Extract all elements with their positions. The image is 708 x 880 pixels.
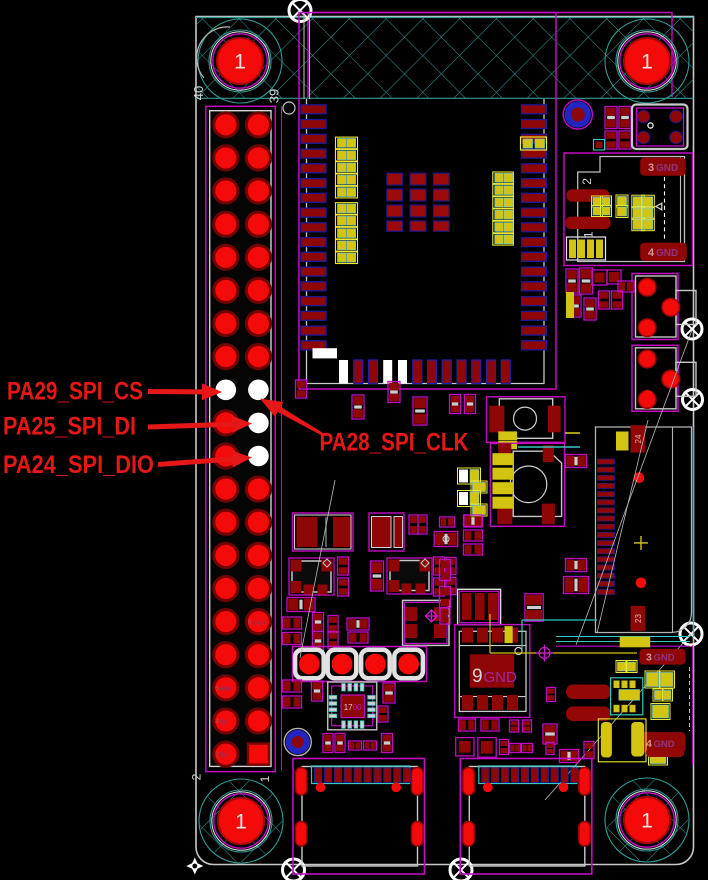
svg-text:4: 4 — [215, 719, 219, 726]
svg-text:PA24_SPI_DIO: PA24_SPI_DIO — [3, 451, 154, 479]
svg-text:3: 3 — [648, 162, 654, 174]
svg-text:24: 24 — [634, 434, 643, 443]
svg-text:2: 2 — [190, 773, 204, 780]
svg-text:GND: GND — [656, 248, 678, 259]
svg-text:1: 1 — [641, 810, 653, 833]
svg-text:1: 1 — [258, 775, 272, 782]
svg-text:5V: 5V — [220, 720, 227, 726]
svg-text:2: 2 — [580, 178, 594, 185]
svg-text:GND: GND — [656, 163, 678, 174]
svg-text:1: 1 — [641, 51, 653, 74]
svg-text:6: 6 — [215, 686, 219, 693]
svg-text:2: 2 — [215, 752, 219, 759]
svg-text:GND: GND — [484, 669, 518, 686]
svg-text:1: 1 — [235, 811, 247, 834]
svg-text:GND: GND — [253, 621, 265, 627]
svg-text:GND: GND — [220, 687, 232, 693]
svg-text:4: 4 — [648, 247, 655, 259]
svg-text:9: 9 — [248, 620, 252, 627]
svg-text:00: 00 — [353, 703, 362, 712]
svg-text:39: 39 — [267, 89, 282, 103]
svg-text:9: 9 — [472, 666, 483, 687]
svg-text:GND: GND — [654, 653, 675, 664]
svg-text:PA29_SPI_CS: PA29_SPI_CS — [7, 378, 143, 406]
svg-text:40: 40 — [191, 86, 206, 100]
svg-text:1: 1 — [234, 51, 246, 74]
svg-text:PA25_SPI_DI: PA25_SPI_DI — [3, 413, 136, 441]
svg-text:23: 23 — [634, 614, 643, 623]
svg-text:PA28_SPI_CLK: PA28_SPI_CLK — [320, 429, 469, 457]
svg-text:5V: 5V — [220, 753, 227, 759]
svg-text:3: 3 — [646, 652, 652, 664]
